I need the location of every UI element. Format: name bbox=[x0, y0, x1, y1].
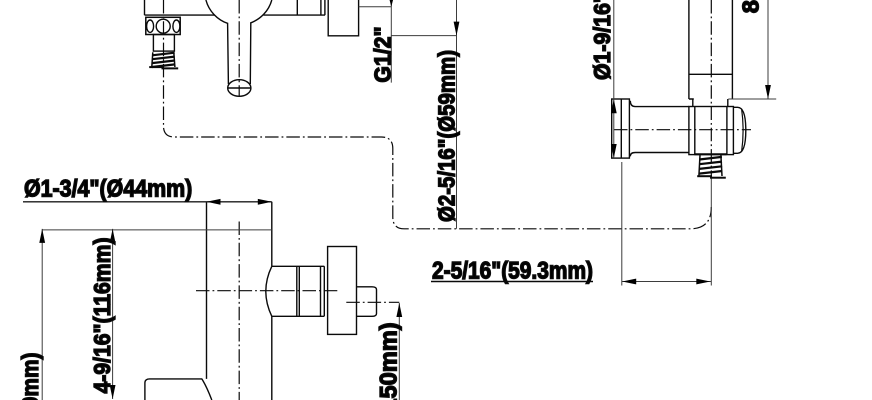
svg-text:8: 8 bbox=[738, 0, 764, 13]
svg-text:G1/2": G1/2" bbox=[370, 26, 396, 82]
svg-text:Ø1-9/16": Ø1-9/16" bbox=[589, 0, 615, 80]
svg-text:5-7/8"(150mm): 5-7/8"(150mm) bbox=[376, 322, 403, 400]
svg-text:6-5/16"(160mm): 6-5/16"(160mm) bbox=[17, 353, 43, 400]
svg-text:Ø1-3/4"(Ø44mm): Ø1-3/4"(Ø44mm) bbox=[24, 176, 192, 203]
svg-text:4-9/16"(116mm): 4-9/16"(116mm) bbox=[89, 238, 115, 394]
svg-text:Ø2-5/16"(Ø59mm): Ø2-5/16"(Ø59mm) bbox=[434, 50, 460, 222]
svg-text:2-5/16"(59.3mm): 2-5/16"(59.3mm) bbox=[432, 258, 593, 285]
